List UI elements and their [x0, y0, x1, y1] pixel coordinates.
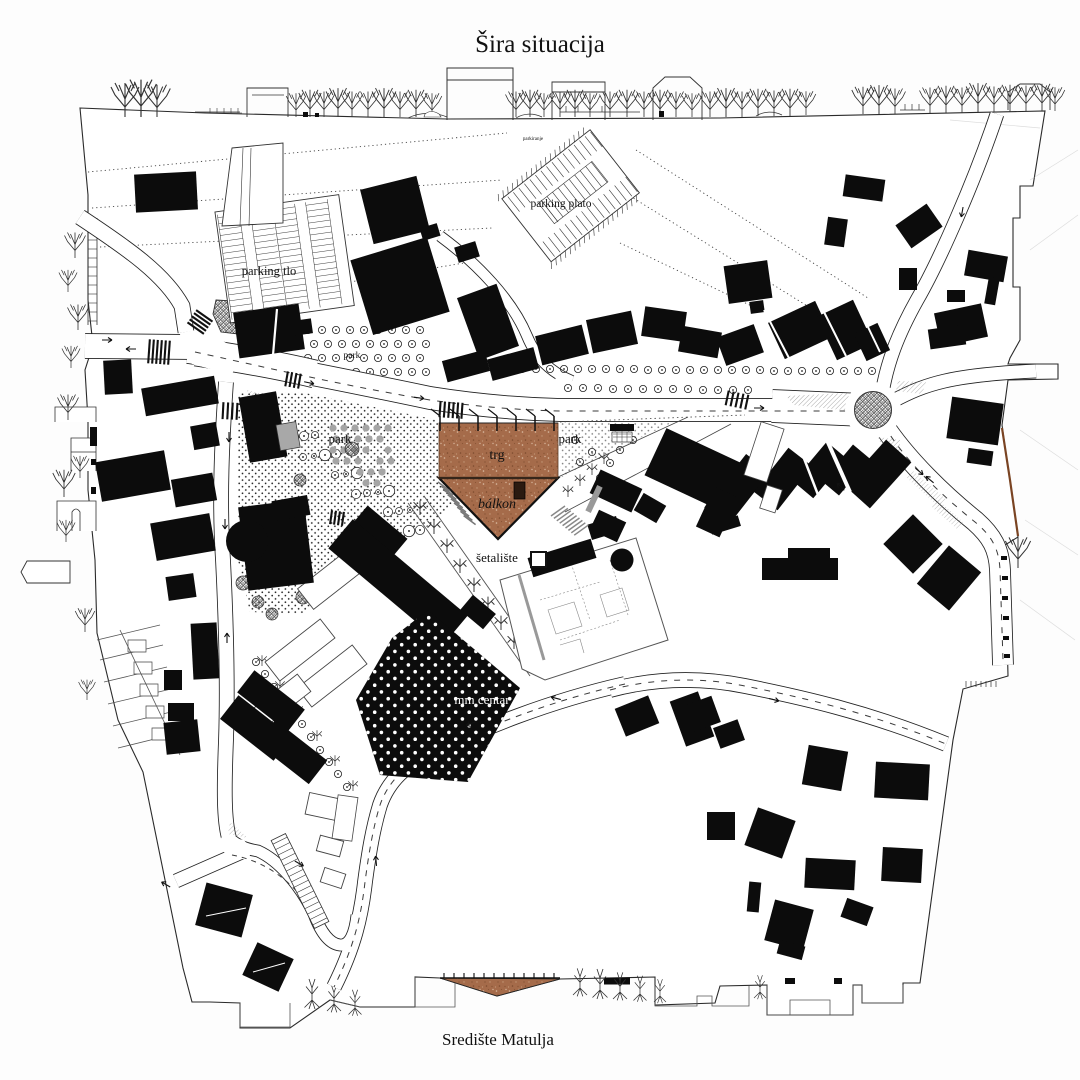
- svg-text:park: park: [558, 431, 582, 446]
- svg-text:bálkon: bálkon: [478, 497, 516, 512]
- svg-text:park: park: [344, 351, 361, 361]
- svg-text:parking plato: parking plato: [531, 198, 592, 210]
- svg-text:mm centar: mm centar: [454, 692, 510, 707]
- svg-text:Šira situacija: Šira situacija: [475, 29, 605, 58]
- svg-text:šetalište: šetalište: [476, 550, 518, 565]
- svg-text:park: park: [328, 431, 352, 446]
- svg-text:parking tlo: parking tlo: [242, 264, 297, 278]
- svg-text:trg: trg: [489, 448, 504, 463]
- svg-text:Središte Matulja: Središte Matulja: [442, 1030, 554, 1049]
- svg-text:parkiranje: parkiranje: [523, 137, 544, 142]
